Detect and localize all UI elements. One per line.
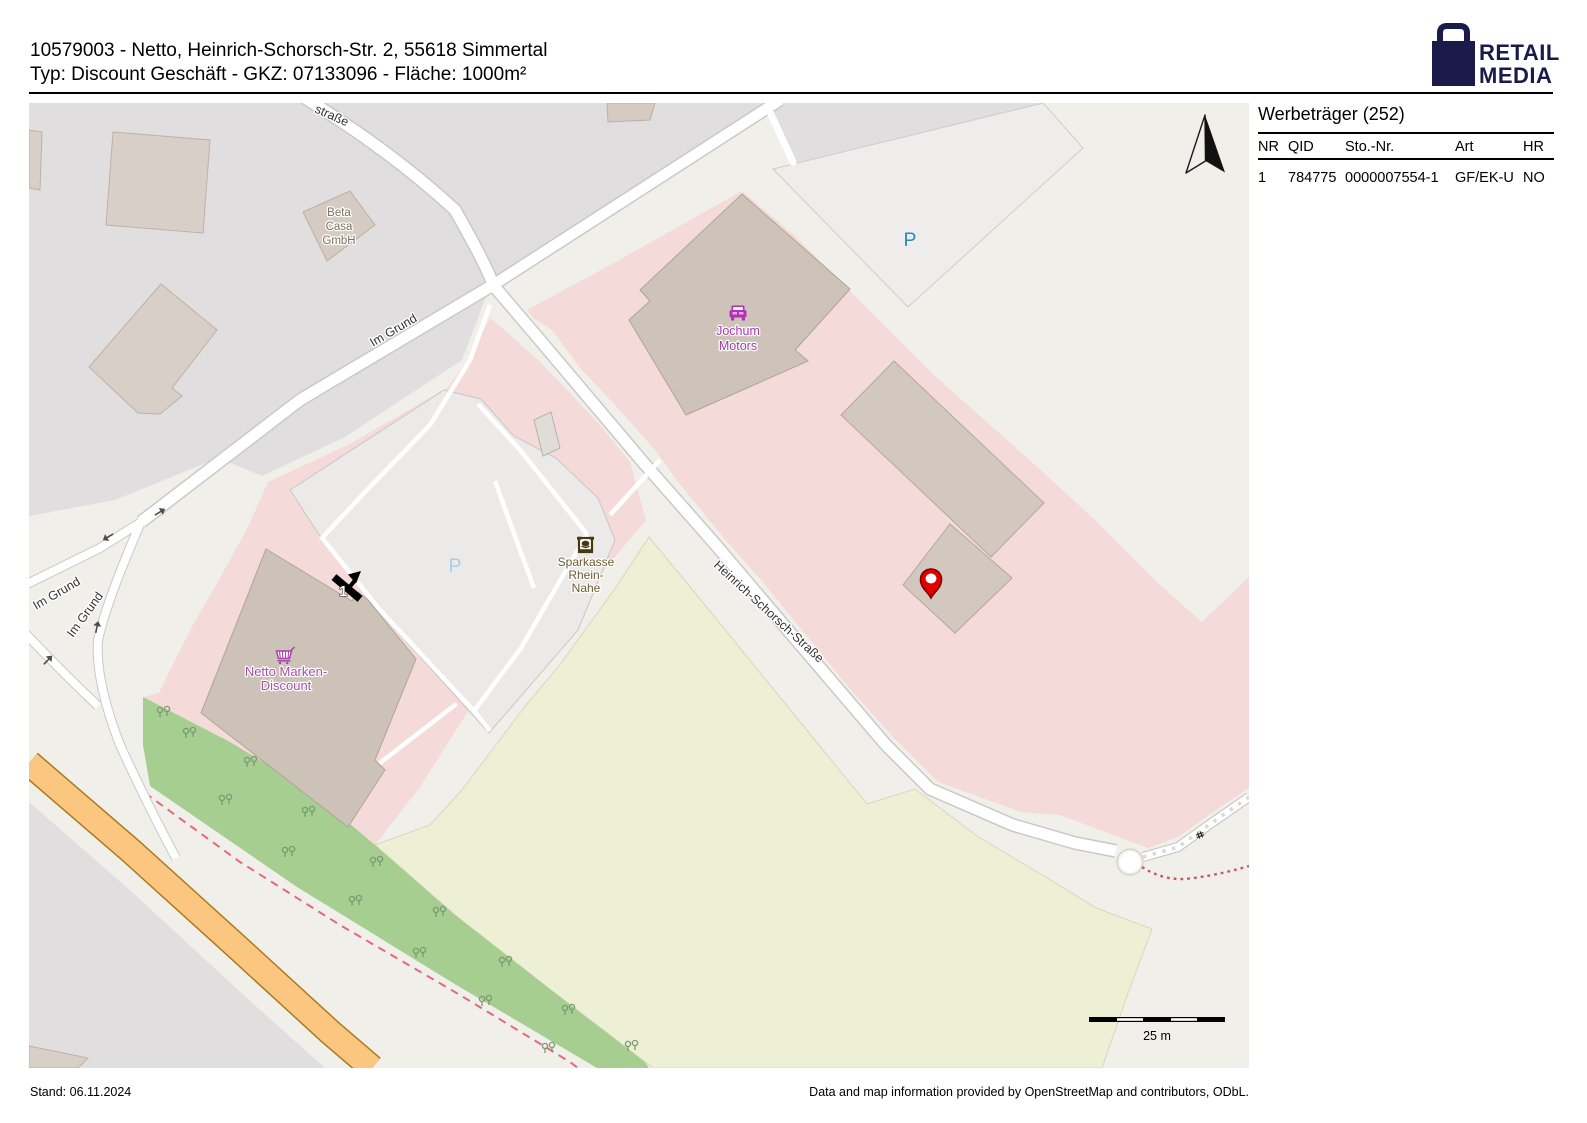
svg-text:Jochum: Jochum — [716, 324, 760, 338]
svg-text:MEDIA: MEDIA — [1479, 63, 1552, 87]
svg-text:P: P — [448, 555, 461, 577]
svg-text:Rhein-: Rhein- — [568, 568, 603, 582]
svg-text:25 m: 25 m — [1143, 1029, 1171, 1043]
svg-text:P: P — [903, 229, 916, 251]
svg-text:Sparkasse: Sparkasse — [558, 555, 615, 569]
svg-text:Netto Marken-: Netto Marken- — [245, 664, 327, 679]
svg-text:1: 1 — [339, 583, 347, 600]
svg-text:Beta: Beta — [327, 207, 351, 219]
svg-text:Nahe: Nahe — [572, 581, 601, 595]
svg-text:GmbH: GmbH — [322, 235, 355, 247]
svg-text:Discount: Discount — [261, 678, 312, 693]
svg-text:Casa: Casa — [326, 221, 353, 233]
svg-text:Motors: Motors — [719, 339, 757, 353]
svg-text:RETAIL: RETAIL — [1479, 40, 1560, 65]
